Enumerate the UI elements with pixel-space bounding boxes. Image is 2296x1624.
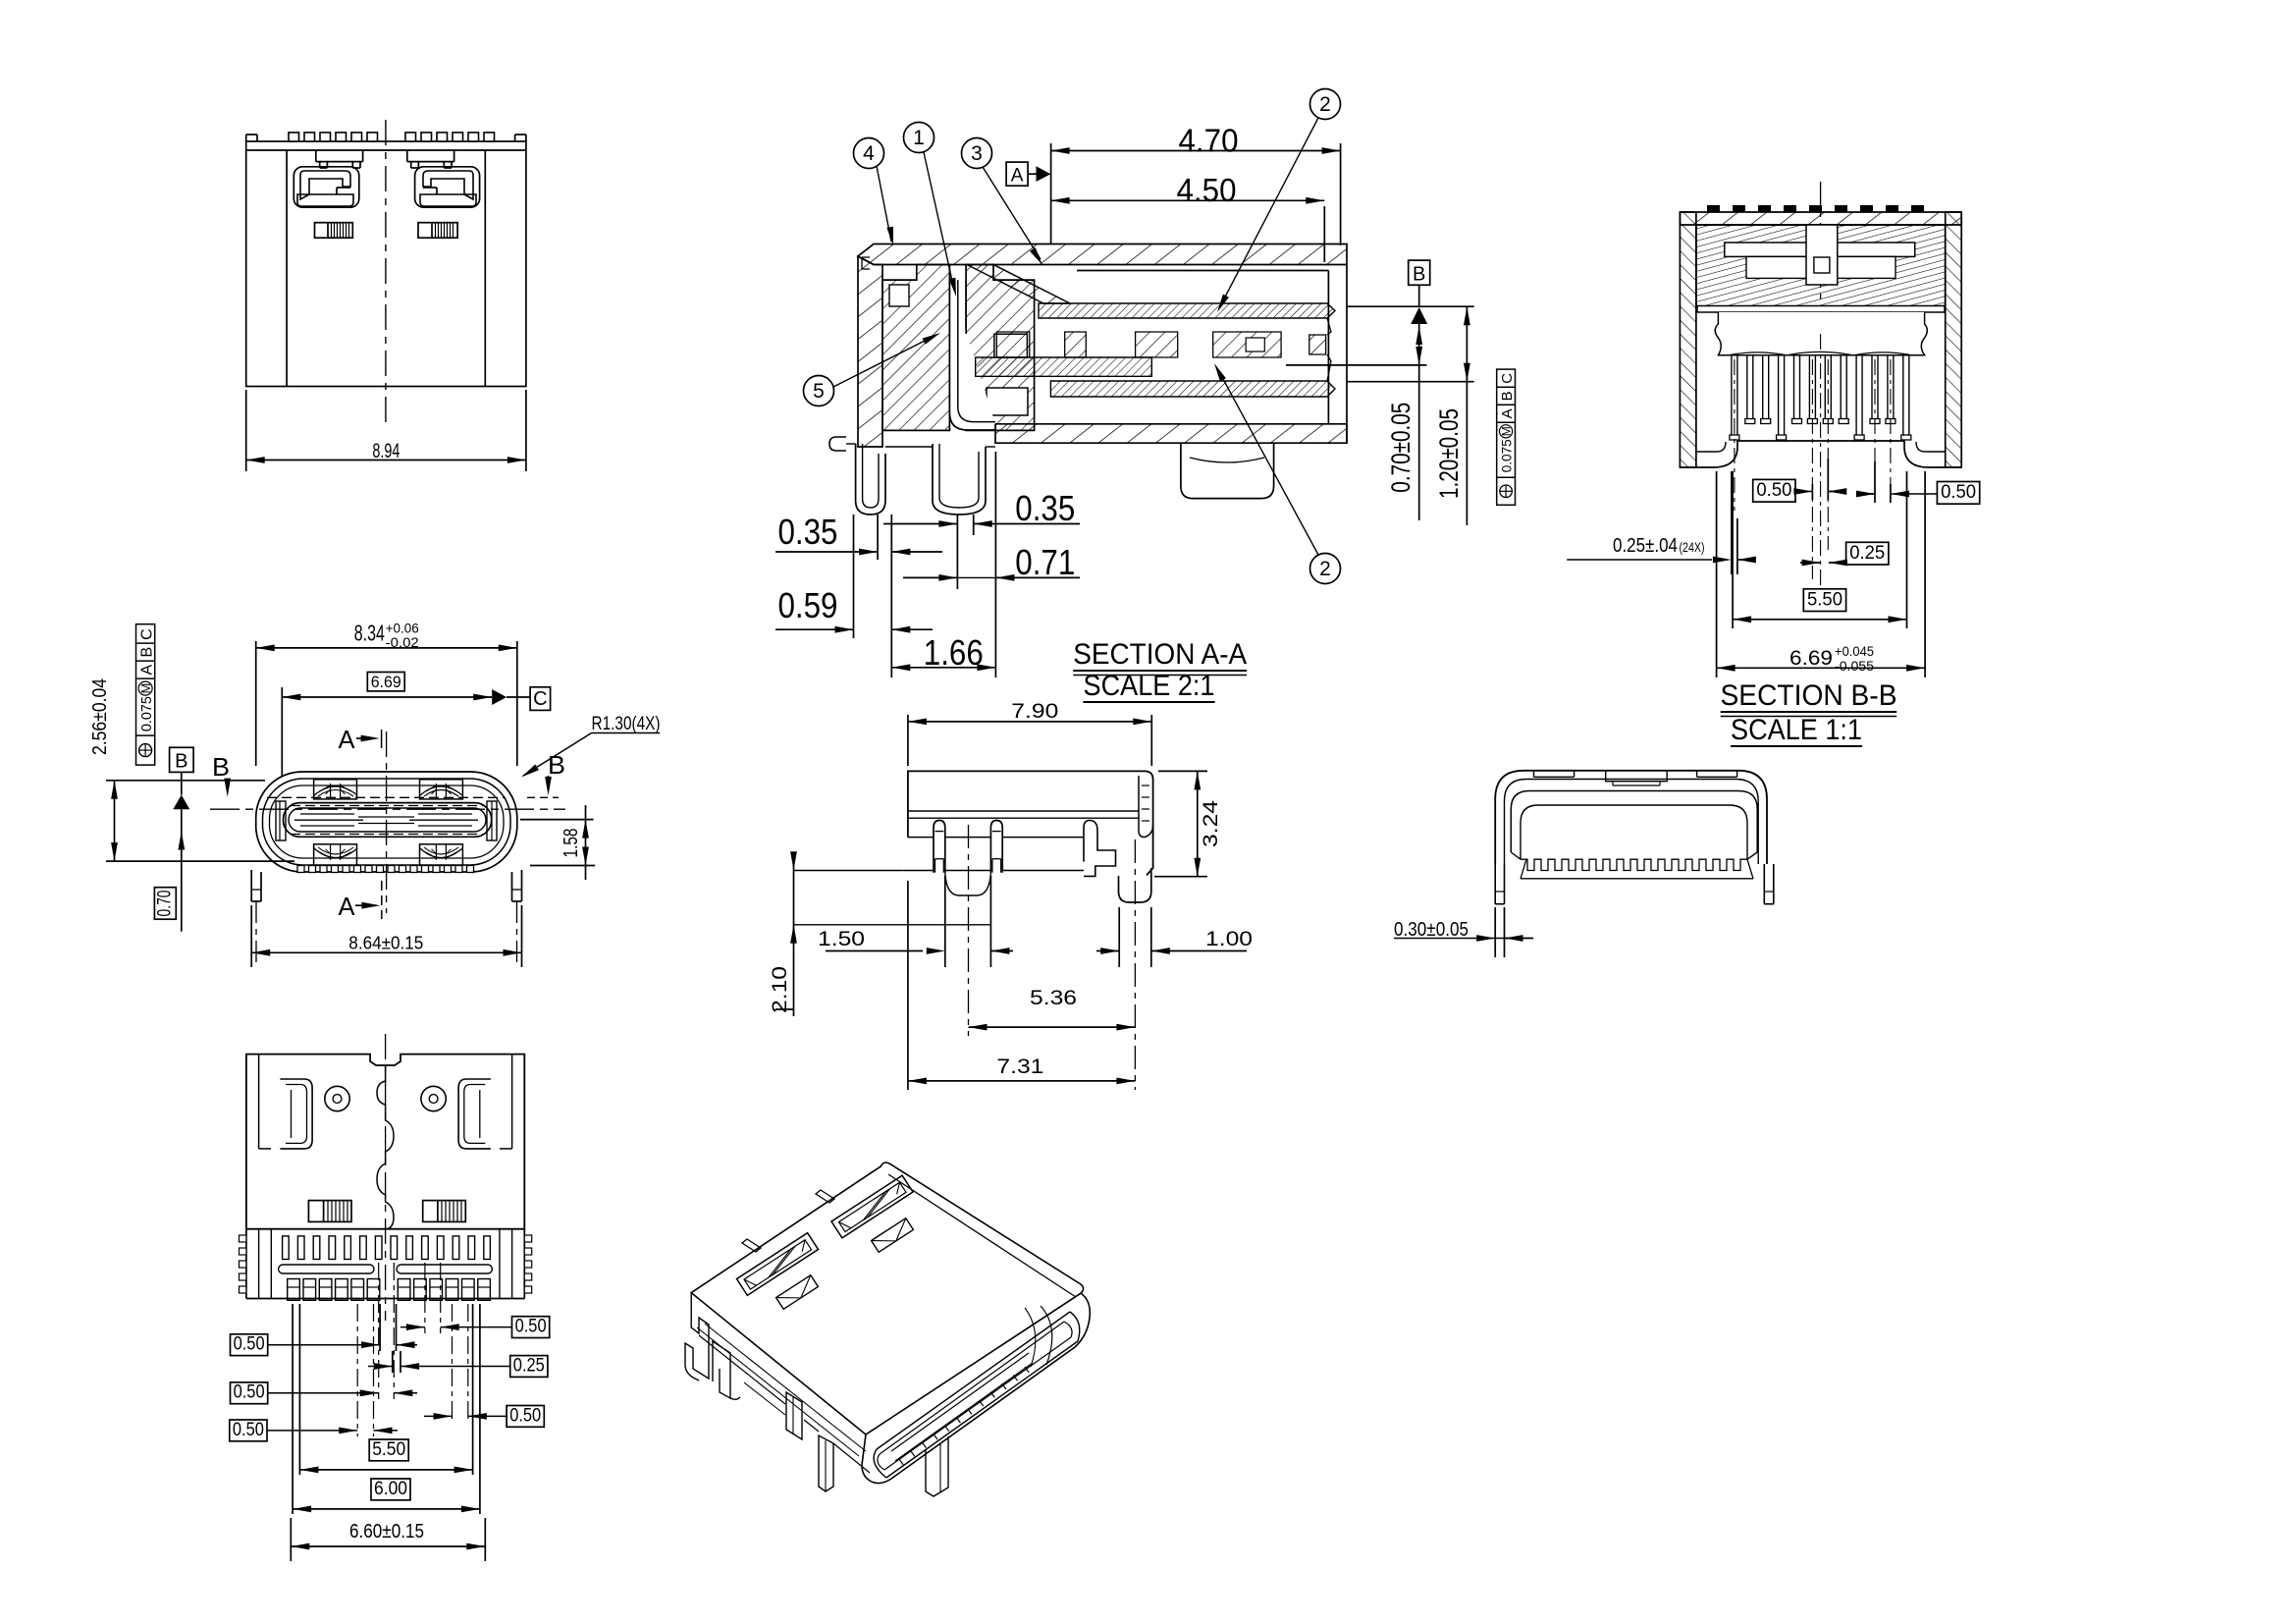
svg-text:+0.06: +0.06 <box>386 622 419 636</box>
svg-text:0.075: 0.075 <box>1499 439 1515 472</box>
svg-text:B: B <box>139 647 156 658</box>
svg-text:A: A <box>339 725 356 754</box>
svg-text:0.50: 0.50 <box>509 1405 541 1426</box>
svg-text:5.50: 5.50 <box>1807 590 1842 611</box>
svg-text:0.25: 0.25 <box>1849 543 1885 564</box>
svg-text:C: C <box>1499 373 1516 384</box>
svg-text:0.50: 0.50 <box>1941 482 1976 503</box>
svg-text:0.35: 0.35 <box>778 512 838 552</box>
svg-text:C: C <box>533 688 547 710</box>
svg-text:0.50: 0.50 <box>234 1382 265 1403</box>
svg-text:0.075: 0.075 <box>138 696 155 731</box>
svg-text:0.50: 0.50 <box>515 1317 547 1337</box>
svg-text:0.70±0.05: 0.70±0.05 <box>1386 403 1415 493</box>
svg-text:1.66: 1.66 <box>924 632 984 673</box>
svg-text:SCALE 2:1: SCALE 2:1 <box>1084 670 1215 702</box>
svg-text:+0.045: +0.045 <box>1835 643 1874 659</box>
svg-text:M: M <box>138 683 153 694</box>
svg-text:4.70: 4.70 <box>1179 123 1239 159</box>
svg-text:0.70: 0.70 <box>155 891 176 917</box>
svg-text:5.50: 5.50 <box>372 1439 405 1460</box>
svg-text:7.31: 7.31 <box>996 1056 1043 1078</box>
svg-text:B: B <box>1499 391 1516 401</box>
svg-text:4.50: 4.50 <box>1177 172 1237 208</box>
svg-text:SCALE 1:1: SCALE 1:1 <box>1731 714 1862 746</box>
svg-text:SECTION B-B: SECTION B-B <box>1721 679 1897 712</box>
svg-text:2.10: 2.10 <box>769 966 791 1013</box>
svg-text:1.20±0.05: 1.20±0.05 <box>1434 408 1464 499</box>
svg-text:1.50: 1.50 <box>818 928 865 950</box>
svg-text:A: A <box>1011 166 1024 187</box>
svg-text:A: A <box>339 892 356 921</box>
svg-text:A: A <box>139 664 156 675</box>
svg-text:0.50: 0.50 <box>233 1420 264 1440</box>
svg-text:6.69: 6.69 <box>371 673 401 691</box>
svg-text:0.30±0.05: 0.30±0.05 <box>1394 919 1468 941</box>
svg-text:-0.02: -0.02 <box>386 635 419 650</box>
svg-text:0.50: 0.50 <box>234 1334 265 1355</box>
svg-text:C: C <box>139 628 156 640</box>
svg-text:0.35: 0.35 <box>1015 488 1075 528</box>
svg-text:B: B <box>1413 264 1425 286</box>
svg-text:8.64±0.15: 8.64±0.15 <box>348 933 423 953</box>
svg-text:6.60±0.15: 6.60±0.15 <box>349 1521 424 1543</box>
svg-text:-0.055: -0.055 <box>1835 658 1874 674</box>
svg-text:(24X): (24X) <box>1680 539 1705 555</box>
svg-text:B: B <box>175 751 187 773</box>
svg-text:2: 2 <box>1319 558 1331 580</box>
svg-text:3.24: 3.24 <box>1200 800 1222 847</box>
svg-text:5.36: 5.36 <box>1030 987 1077 1009</box>
svg-text:1.58: 1.58 <box>561 829 582 858</box>
svg-text:2: 2 <box>1319 93 1331 116</box>
svg-text:4: 4 <box>863 142 875 165</box>
svg-text:M: M <box>1500 426 1514 436</box>
svg-text:B: B <box>548 750 565 780</box>
svg-text:3: 3 <box>971 142 983 165</box>
svg-text:0.25: 0.25 <box>513 1355 545 1376</box>
svg-text:8.94: 8.94 <box>372 439 400 462</box>
svg-text:1.00: 1.00 <box>1205 928 1253 950</box>
svg-text:7.90: 7.90 <box>1011 700 1058 723</box>
svg-text:6.69: 6.69 <box>1789 647 1833 670</box>
svg-text:A: A <box>1499 408 1516 418</box>
svg-text:0.50: 0.50 <box>1756 480 1791 501</box>
svg-text:0.71: 0.71 <box>1015 542 1075 582</box>
svg-text:5: 5 <box>813 380 825 403</box>
svg-text:SECTION A-A: SECTION A-A <box>1073 638 1247 671</box>
svg-text:6.00: 6.00 <box>374 1479 407 1499</box>
svg-text:B: B <box>212 752 230 782</box>
svg-text:R1.30(4X): R1.30(4X) <box>592 713 661 734</box>
svg-text:8.34: 8.34 <box>354 621 385 646</box>
svg-text:1: 1 <box>913 127 925 149</box>
svg-text:2.56±0.04: 2.56±0.04 <box>89 678 111 755</box>
svg-text:0.59: 0.59 <box>778 585 838 625</box>
svg-text:0.25±.04: 0.25±.04 <box>1613 535 1678 557</box>
